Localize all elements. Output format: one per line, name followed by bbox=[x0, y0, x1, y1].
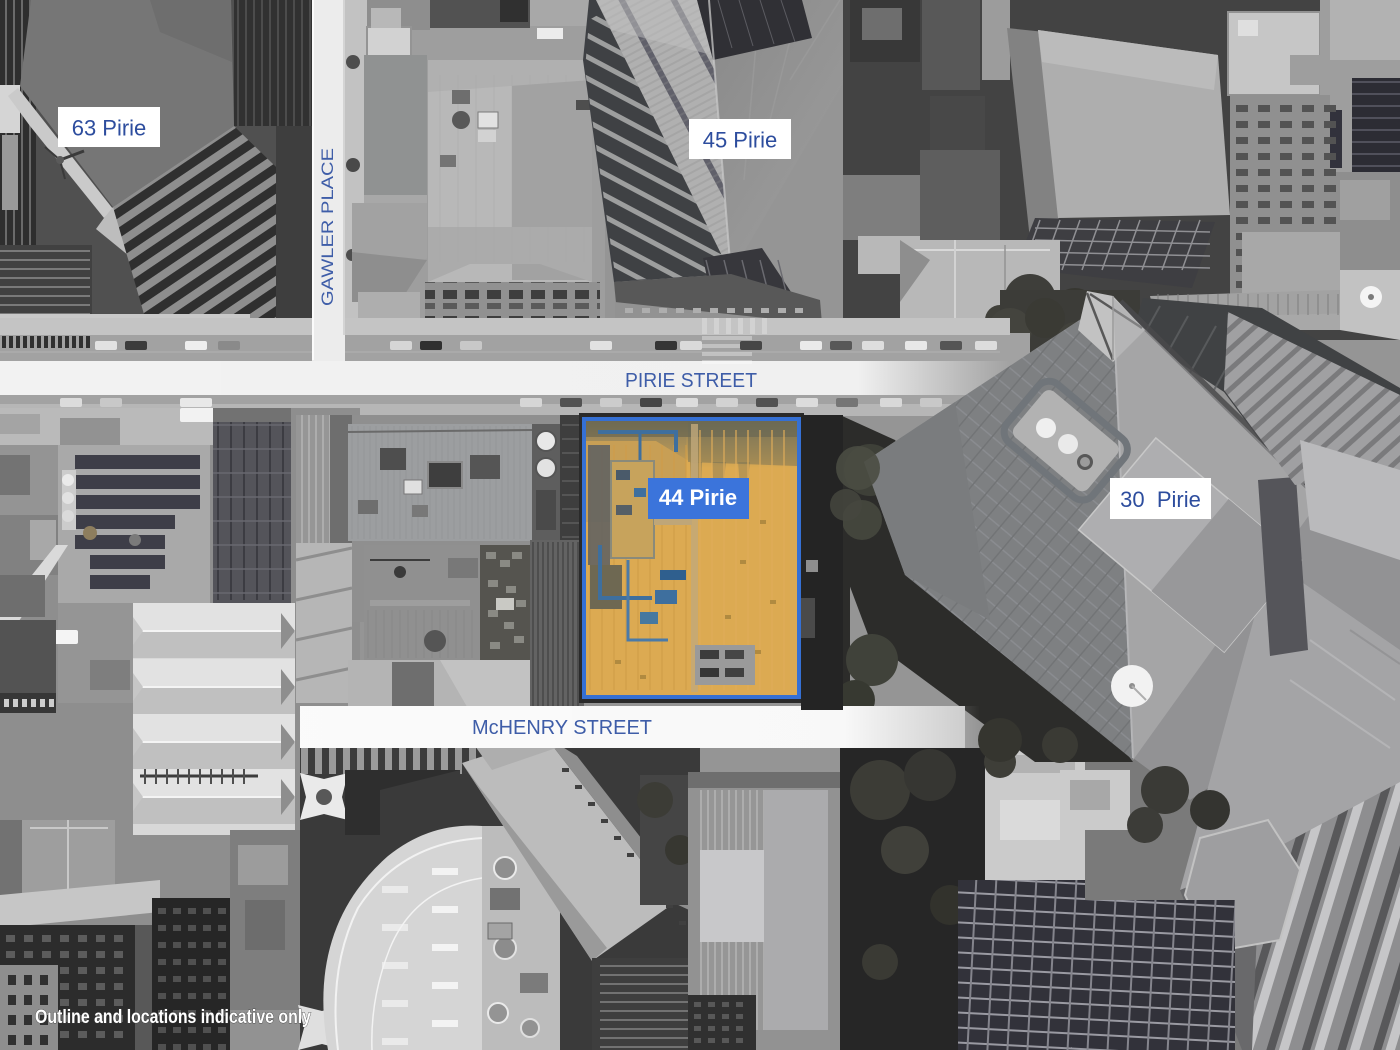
svg-text:PIRIE STREET: PIRIE STREET bbox=[625, 370, 757, 392]
svg-text:45 Pirie: 45 Pirie bbox=[703, 127, 778, 152]
svg-text:GAWLER PLACE: GAWLER PLACE bbox=[318, 148, 337, 306]
svg-text:McHENRY STREET: McHENRY STREET bbox=[472, 717, 652, 739]
svg-text:44 Pirie: 44 Pirie bbox=[659, 485, 737, 510]
svg-text:Outline and locations indicati: Outline and locations indicative only bbox=[35, 1006, 311, 1028]
svg-text:63 Pirie: 63 Pirie bbox=[72, 115, 147, 140]
svg-text:30 Pirie: 30 Pirie bbox=[1120, 487, 1201, 512]
